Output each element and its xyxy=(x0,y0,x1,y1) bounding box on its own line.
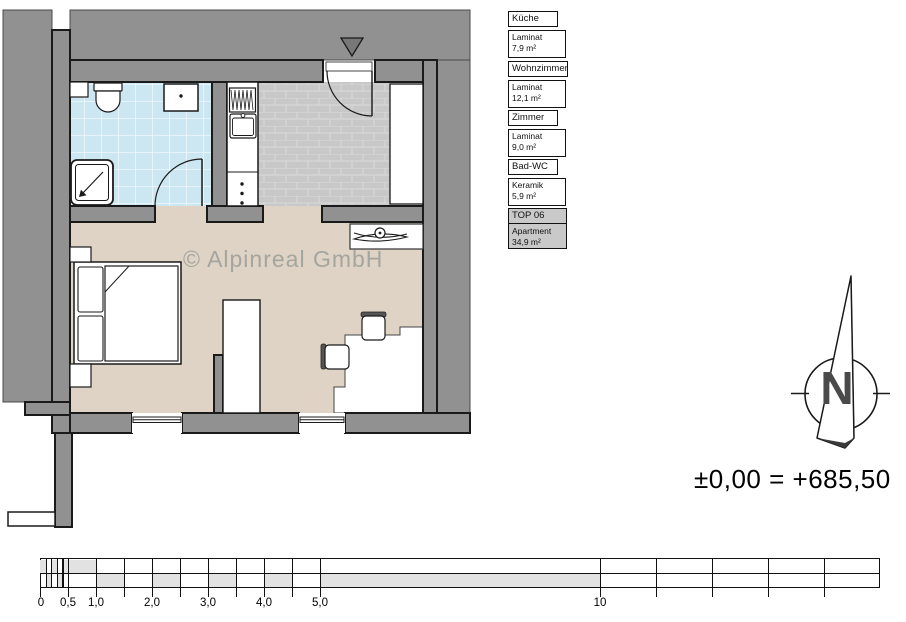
window-1 xyxy=(132,413,182,433)
legend-item-top06: TOP 06 Apartment 34,9 m² xyxy=(508,208,567,249)
scale-label: 0 xyxy=(38,597,44,609)
top-wall-left xyxy=(70,60,323,82)
legend-body: Laminat 9,0 m² xyxy=(508,129,566,157)
desk-chair-left xyxy=(321,344,349,369)
left-wall xyxy=(52,30,70,433)
nightstand-bottom xyxy=(70,364,91,387)
kitchen-sink-icon xyxy=(230,114,256,138)
bottom-wall-3 xyxy=(345,413,470,433)
watermark: © Alpinreal GmbH xyxy=(183,246,383,273)
scale-label: 3,0 xyxy=(200,597,216,609)
kitchen-floor xyxy=(258,82,390,206)
legend-material: Keramik xyxy=(512,180,562,191)
legend-title: TOP 06 xyxy=(509,209,566,224)
legend-body: Laminat 7,9 m² xyxy=(508,30,566,58)
kitchen-opening-threshold xyxy=(263,206,322,222)
scale-label: 10 xyxy=(594,597,607,609)
nightstand-top xyxy=(70,247,91,262)
legend-body: Apartment 34,9 m² xyxy=(509,224,566,250)
north-label: N xyxy=(810,365,864,411)
bottom-wall-2 xyxy=(182,413,299,433)
wardrobe xyxy=(223,300,260,413)
bottom-wall-1 xyxy=(70,413,132,433)
legend-material: Apartment xyxy=(512,226,563,237)
bath-kitchen-divider-wall xyxy=(212,82,227,206)
legend-material: Laminat xyxy=(512,131,562,142)
legend-area: 12,1 m² xyxy=(512,93,562,104)
bathroom-pilaster xyxy=(70,82,88,97)
left-wall-mass xyxy=(3,10,52,402)
right-wall xyxy=(423,60,437,413)
legend-material: Laminat xyxy=(512,82,562,93)
legend-area: 7,9 m² xyxy=(512,43,562,54)
toilet-icon xyxy=(94,83,122,112)
floor-plan-page: © Alpinreal GmbH Küche Laminat 7,9 m² Wo… xyxy=(0,0,906,622)
scale-label: 5,0 xyxy=(312,597,328,609)
legend-body: Laminat 12,1 m² xyxy=(508,80,566,108)
pillow xyxy=(78,316,103,361)
scale-label: 4,0 xyxy=(256,597,272,609)
legend-area: 5,9 m² xyxy=(512,191,562,202)
center-wall-column xyxy=(207,206,263,222)
scale-label: 0,5 xyxy=(60,597,76,609)
legend-title: Küche xyxy=(508,11,558,27)
right-wall-mass xyxy=(437,60,470,413)
legend-area: 34,9 m² xyxy=(512,237,563,248)
pillow xyxy=(78,267,103,312)
legend-body: Keramik 5,9 m² xyxy=(508,178,566,206)
left-wall-lower xyxy=(55,433,72,527)
scale-bar-midline xyxy=(40,573,880,575)
legend-area: 9,0 m² xyxy=(512,142,562,153)
legend-title: Bad-WC xyxy=(508,159,558,175)
kitchen-bottom-wall xyxy=(322,206,423,222)
legend-material: Laminat xyxy=(512,32,562,43)
kitchen-counter xyxy=(227,82,258,206)
bathroom-bottom-wall xyxy=(70,206,155,222)
stove-icon xyxy=(230,88,256,112)
hall-cabinet xyxy=(390,84,423,204)
top-wall-mass xyxy=(70,10,470,60)
legend-title: Zimmer xyxy=(508,110,558,126)
partition-stub xyxy=(214,355,223,413)
elevation-text: ±0,00 = +685,50 xyxy=(694,464,891,495)
legend-title: Wohnzimmer xyxy=(508,61,568,77)
scale-label: 2,0 xyxy=(144,597,160,609)
left-wall-stub xyxy=(25,402,70,415)
window-2 xyxy=(299,413,345,433)
scale-label: 1,0 xyxy=(88,597,104,609)
desk-chair-top xyxy=(361,312,386,340)
exterior-step xyxy=(8,512,55,526)
shower-icon xyxy=(71,160,113,205)
bath-door-threshold xyxy=(155,206,207,222)
bath-sink-icon xyxy=(164,84,198,111)
bed xyxy=(74,262,181,364)
